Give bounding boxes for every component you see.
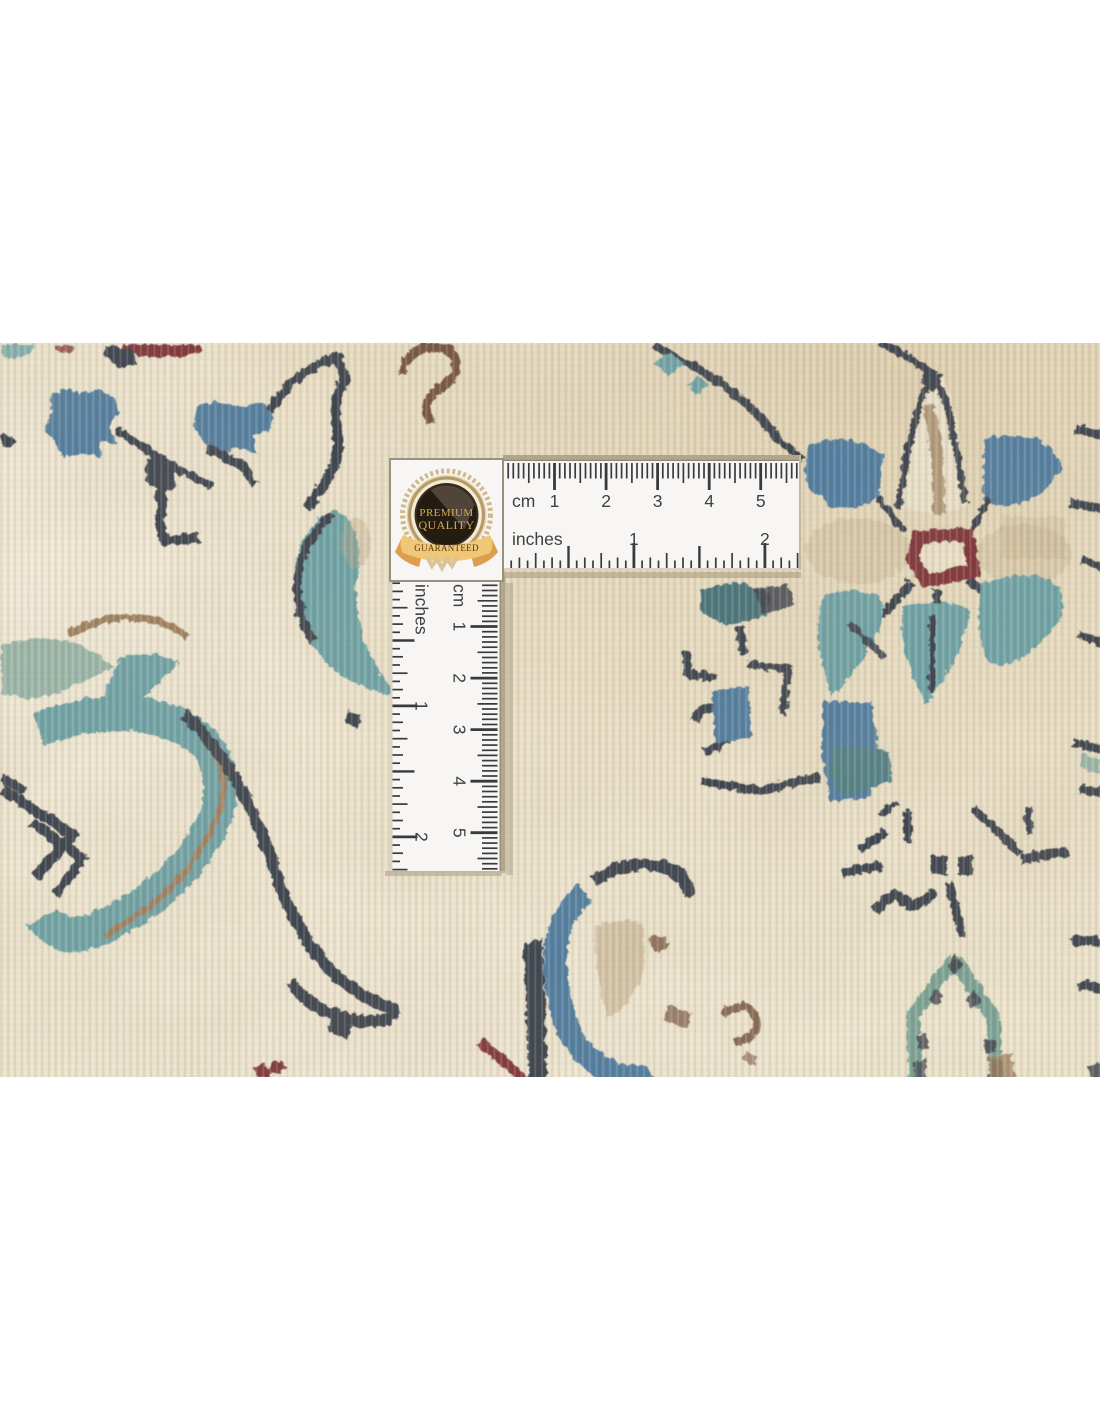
svg-text:5: 5 [450, 828, 470, 838]
svg-text:4: 4 [450, 776, 470, 786]
svg-text:1: 1 [450, 622, 470, 632]
svg-text:inches: inches [512, 529, 563, 549]
svg-text:2: 2 [760, 529, 770, 549]
svg-text:5: 5 [756, 491, 766, 511]
svg-text:1: 1 [550, 491, 560, 511]
svg-text:QUALITY: QUALITY [418, 518, 474, 532]
svg-text:cm: cm [512, 491, 535, 511]
svg-text:2: 2 [450, 673, 470, 683]
svg-text:2: 2 [601, 491, 611, 511]
svg-text:inches: inches [412, 584, 432, 635]
svg-text:GUARANTEED: GUARANTEED [414, 543, 479, 553]
svg-text:1: 1 [629, 529, 639, 549]
svg-text:3: 3 [450, 725, 470, 735]
svg-text:2: 2 [412, 832, 432, 842]
svg-text:1: 1 [412, 701, 432, 711]
svg-text:3: 3 [653, 491, 663, 511]
svg-text:cm: cm [450, 584, 470, 607]
svg-text:4: 4 [704, 491, 714, 511]
